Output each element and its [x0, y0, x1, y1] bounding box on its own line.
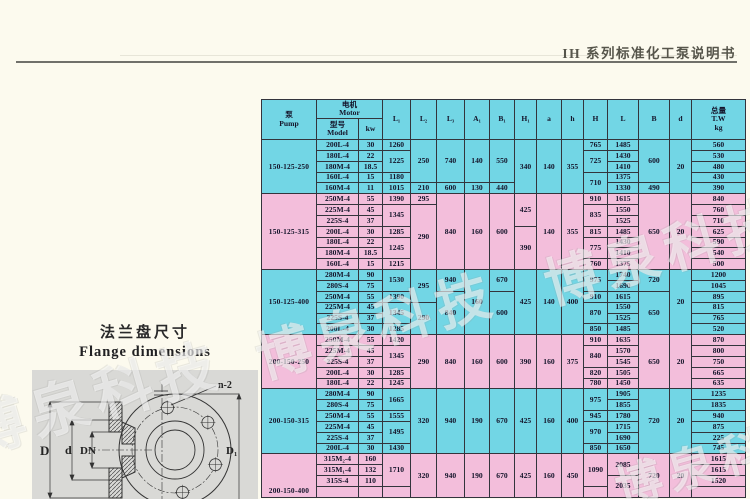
spec-cell: 1550 [608, 302, 639, 313]
header-model: 型号 Model [317, 119, 359, 140]
spec-cell: 1245 [383, 237, 411, 259]
spec-cell: 1690 [608, 280, 639, 291]
header-motor: 电机 Motor [317, 100, 383, 119]
spec-cell: 910 [584, 335, 608, 346]
spec-cell: 1215 [383, 259, 411, 270]
spec-cell: 725 [584, 150, 608, 172]
spec-cell: 180M-4 [317, 161, 359, 172]
spec-cell: 90 [359, 389, 383, 400]
spec-cell: 250M-4 [317, 194, 359, 205]
spec-cell: 840 [437, 291, 465, 334]
spec-cell: 1420 [383, 335, 411, 346]
spec-cell: 250M-4 [317, 291, 359, 302]
spec-cell: 1520 [692, 476, 746, 487]
spec-cell: 1715 [608, 421, 639, 432]
spec-cell: 500 [692, 259, 746, 270]
spec-cell: 1430 [608, 237, 639, 248]
spec-cell: 295 [411, 270, 437, 303]
spec-cell: 200L-4 [317, 226, 359, 237]
spec-cell: 450 [562, 454, 584, 497]
spec-cell: 1485 [608, 226, 639, 237]
table-row: 200-150-250250M-455142029084016060039016… [262, 335, 746, 346]
spec-cell: 22 [359, 150, 383, 161]
spec-cell: 225M-4 [317, 205, 359, 216]
spec-cell: 1740 [608, 270, 639, 281]
spec-cell: 180L-4 [317, 150, 359, 161]
spec-cell: 1285 [383, 324, 411, 335]
spec-cell: 320 [411, 389, 437, 454]
spec-cell: 140 [537, 270, 562, 335]
spec-cell: 1375 [608, 259, 639, 270]
table-row: 150-125-315250M-455139029584016060042514… [262, 194, 746, 205]
spec-cell: 800 [692, 346, 746, 357]
spec-cell: 835 [584, 205, 608, 227]
spec-cell: 940 [437, 270, 465, 292]
spec-cell: 1390 [383, 291, 411, 302]
spec-cell: 1330 [608, 183, 639, 194]
spec-cell: 1570 [608, 346, 639, 357]
spec-cell: 160 [359, 454, 383, 465]
spec-cell: 30 [359, 324, 383, 335]
spec-cell: 1555 [383, 411, 411, 422]
spec-cell: 1710 [383, 454, 411, 487]
spec-cell: 975 [584, 270, 608, 292]
spec-cell: 1045 [692, 280, 746, 291]
spec-cell: 940 [437, 454, 465, 497]
spec-cell: 1410 [608, 161, 639, 172]
spec-cell: 720 [639, 270, 670, 292]
spec-cell: 1375 [608, 172, 639, 183]
spec-cell: 20 [670, 140, 692, 194]
spec-cell: 400 [562, 389, 584, 454]
spec-cell: 635 [692, 378, 746, 389]
spec-cell: 1855 [608, 400, 639, 411]
spec-cell: 425 [515, 270, 537, 335]
spec-cell: 1410 [608, 248, 639, 259]
spec-cell: 1690 [608, 432, 639, 443]
spec-cell: 160L-4 [317, 259, 359, 270]
spec-cell: 225M-4 [317, 346, 359, 357]
spec-cell: 1450 [608, 378, 639, 389]
spec-table: 泵 Pump电机 MotorL₁L₂L₃A₁B₁H₁ahHLBd总量 T.W k… [261, 99, 746, 498]
spec-cell: 390 [692, 183, 746, 194]
spec-cell: 425 [515, 454, 537, 497]
spec-cell: 870 [584, 302, 608, 324]
spec-cell: 1345 [383, 346, 411, 368]
spec-cell: 20 [670, 194, 692, 270]
spec-cell: 400 [562, 270, 584, 335]
spec-cell: 1345 [383, 205, 411, 227]
spec-cell: 180L-4 [317, 378, 359, 389]
spec-cell: 130 [465, 183, 490, 194]
spec-cell: 90 [359, 270, 383, 281]
spec-cell: 315M₁-4 [317, 465, 359, 476]
spec-cell: 870 [692, 335, 746, 346]
spec-cell: 200L-4 [317, 140, 359, 151]
spec-cell: 1545 [608, 356, 639, 367]
spec-cell: 315M₂-4 [317, 454, 359, 465]
header-pump: 泵 Pump [262, 100, 317, 140]
spec-cell: 22 [359, 237, 383, 248]
spec-cell: 670 [490, 454, 515, 497]
table-row: 200-150-400315M₂-41601710320940190670425… [262, 454, 746, 465]
spec-cell: 250 [411, 140, 437, 183]
spec-cell: 290 [411, 302, 437, 335]
spec-cell: 1090 [584, 454, 608, 487]
spec-cell: 430 [692, 172, 746, 183]
spec-cell: 200L-4 [317, 443, 359, 454]
spec-cell: 1635 [608, 335, 639, 346]
spec-cell: 840 [692, 194, 746, 205]
spec-cell: 1345 [383, 302, 411, 324]
spec-cell: 840 [437, 335, 465, 389]
spec-cell: 15 [359, 259, 383, 270]
spec-cell: 1180 [383, 172, 411, 183]
spec-cell: 160 [537, 335, 562, 389]
flange-diagram: D d DN n-2 D₁ [32, 370, 258, 499]
spec-cell: 775 [584, 237, 608, 259]
spec-cell: 160M-4 [317, 183, 359, 194]
spec-cell: 55 [359, 335, 383, 346]
spec-cell: 520 [692, 324, 746, 335]
header-dim-11: d [670, 100, 692, 140]
spec-cell: 940 [692, 411, 746, 422]
spec-cell: 1260 [383, 140, 411, 151]
label-D: D [40, 443, 49, 458]
spec-cell: 760 [692, 205, 746, 216]
spec-cell: 425 [515, 389, 537, 454]
spec-cell: 1485 [608, 324, 639, 335]
spec-cell: 2035 [608, 476, 639, 498]
spec-cell: 910 [584, 291, 608, 302]
spec-cell: 37 [359, 313, 383, 324]
spec-cell: 55 [359, 194, 383, 205]
pump-size-cell: 150-125-250 [262, 140, 317, 194]
pump-size-cell: 150-125-315 [262, 194, 317, 270]
spec-cell: 37 [359, 356, 383, 367]
pump-size-cell: 200-150-315 [262, 389, 317, 454]
spec-cell: 30 [359, 367, 383, 378]
spec-cell [692, 487, 746, 498]
spec-cell: 20 [670, 335, 692, 389]
spec-cell: 665 [692, 367, 746, 378]
spec-cell: 250M-4 [317, 411, 359, 422]
spec-cell: 1505 [608, 367, 639, 378]
page-title: IH 系列标准化工泵说明书 [562, 42, 736, 62]
header-total-weight: 总量 T.W kg [692, 100, 746, 140]
flange-title-zh: 法兰盘尺寸 [32, 321, 258, 342]
spec-cell: 850 [584, 324, 608, 335]
spec-cell: 1495 [383, 421, 411, 443]
spec-cell: 820 [584, 367, 608, 378]
spec-cell: 1245 [383, 378, 411, 389]
spec-cell: 1615 [692, 465, 746, 476]
spec-cell: 75 [359, 400, 383, 411]
spec-cell [383, 487, 411, 498]
spec-cell: 290 [411, 205, 437, 270]
spec-cell: 290 [411, 335, 437, 389]
spec-cell: 225S-4 [317, 356, 359, 367]
spec-cell: 1485 [608, 140, 639, 151]
spec-cell: 590 [692, 237, 746, 248]
spec-cell: 20 [670, 270, 692, 335]
spec-cell: 1285 [383, 226, 411, 237]
spec-cell: 55 [359, 291, 383, 302]
header-dim-6: a [537, 100, 562, 140]
spec-cell: 132 [359, 465, 383, 476]
label-D1: D₁ [226, 445, 237, 457]
spec-cell: 375 [562, 335, 584, 389]
spec-cell: 1430 [383, 443, 411, 454]
spec-cell: 11 [359, 183, 383, 194]
spec-cell: 850 [584, 443, 608, 454]
spec-cell: 780 [584, 378, 608, 389]
spec-cell [359, 487, 383, 498]
spec-cell: 140 [537, 140, 562, 194]
spec-cell: 160 [465, 335, 490, 389]
spec-cell: 600 [490, 194, 515, 270]
spec-cell: 1530 [383, 270, 411, 292]
spec-cell: 295 [411, 194, 437, 205]
spec-cell: 160 [465, 270, 490, 335]
spec-cell: 250M-4 [317, 335, 359, 346]
spec-cell: 1835 [692, 400, 746, 411]
spec-cell: 20 [670, 454, 692, 497]
spec-cell: 160L-4 [317, 172, 359, 183]
spec-cell: 37 [359, 432, 383, 443]
spec-cell: 895 [692, 291, 746, 302]
spec-cell: 650 [639, 291, 670, 334]
spec-cell: 225M-4 [317, 421, 359, 432]
header-kw: kw [359, 119, 383, 140]
spec-cell: 720 [639, 389, 670, 454]
spec-cell: 540 [692, 248, 746, 259]
spec-cell: 425 [515, 194, 537, 227]
spec-cell: 720 [639, 454, 670, 497]
spec-cell: 1550 [608, 205, 639, 216]
spec-cell [584, 487, 608, 498]
header-dim-2: L₃ [437, 100, 465, 140]
spec-cell: 200L-4 [317, 324, 359, 335]
spec-cell: 815 [692, 302, 746, 313]
spec-cell: 30 [359, 140, 383, 151]
spec-cell: 1525 [608, 215, 639, 226]
spec-cell: 480 [692, 161, 746, 172]
spec-cell: 1015 [383, 183, 411, 194]
table-row: 150-125-400280M-490153029594016067042514… [262, 270, 746, 281]
spec-cell: 1615 [608, 291, 639, 302]
header-dim-8: H [584, 100, 608, 140]
spec-cell: 600 [437, 183, 465, 194]
spec-cell: 530 [692, 150, 746, 161]
spec-cell: 1225 [383, 150, 411, 172]
spec-cell: 20 [670, 389, 692, 454]
header-dim-9: L [608, 100, 639, 140]
spec-cell: 18.5 [359, 161, 383, 172]
flange-title-en: Flange dimensions [32, 344, 258, 361]
spec-cell: 355 [562, 140, 584, 194]
spec-cell: 750 [692, 356, 746, 367]
spec-cell: 160 [465, 194, 490, 270]
pump-size-cell: 200-150-400 [262, 454, 317, 497]
spec-cell: 225 [692, 432, 746, 443]
spec-cell: 15 [359, 172, 383, 183]
spec-cell: 840 [584, 346, 608, 368]
spec-cell: 600 [639, 140, 670, 183]
spec-cell: 650 [639, 194, 670, 270]
spec-cell: 600 [490, 335, 515, 389]
spec-cell: 18.5 [359, 248, 383, 259]
spec-cell: 390 [515, 335, 537, 389]
spec-cell: 840 [437, 194, 465, 270]
spec-cell: 140 [537, 194, 562, 270]
spec-cell: 625 [692, 226, 746, 237]
spec-cell: 280M-4 [317, 389, 359, 400]
spec-cell: 710 [584, 172, 608, 194]
spec-cell: 45 [359, 205, 383, 216]
spec-cell: 30 [359, 226, 383, 237]
spec-cell: 355 [562, 194, 584, 270]
spec-cell: 710 [692, 215, 746, 226]
spec-cell: 760 [584, 259, 608, 270]
header-dim-7: h [562, 100, 584, 140]
spec-cell: 75 [359, 280, 383, 291]
spec-cell: 37 [359, 215, 383, 226]
spec-cell: 320 [411, 454, 437, 497]
pump-size-cell: 150-125-400 [262, 270, 317, 335]
spec-cell: 190 [465, 454, 490, 497]
spec-cell: 1615 [692, 454, 746, 465]
header-dim-0: L₁ [383, 100, 411, 140]
spec-cell: 30 [359, 443, 383, 454]
label-d: d [65, 443, 72, 457]
spec-cell: 160 [537, 454, 562, 497]
spec-cell: 140 [465, 140, 490, 183]
spec-cell: 2085 [608, 454, 639, 476]
spec-cell: 1780 [608, 411, 639, 422]
spec-cell: 225S-4 [317, 215, 359, 226]
table-row: 200-150-315280M-490166532094019067042516… [262, 389, 746, 400]
header-dim-10: B [639, 100, 670, 140]
spec-cell: 765 [584, 140, 608, 151]
spec-cell: 740 [437, 140, 465, 183]
spec-cell: 650 [639, 335, 670, 389]
spec-cell: 1235 [692, 389, 746, 400]
spec-cell: 1285 [383, 367, 411, 378]
spec-cell: 440 [490, 183, 515, 194]
table-row: 150-125-250200L-430126025074014055034014… [262, 140, 746, 151]
label-n2: n-2 [218, 380, 232, 391]
spec-cell: 945 [584, 411, 608, 422]
spec-cell [317, 487, 359, 498]
spec-cell: 225S-4 [317, 313, 359, 324]
spec-cell: 280S-4 [317, 280, 359, 291]
spec-table-wrap: 泵 Pump电机 MotorL₁L₂L₃A₁B₁H₁ahHLBd总量 T.W k… [261, 99, 746, 498]
spec-cell: 490 [639, 183, 670, 194]
spec-cell: 45 [359, 346, 383, 357]
spec-cell: 180L-4 [317, 237, 359, 248]
spec-cell: 210 [411, 183, 437, 194]
spec-cell: 1430 [608, 150, 639, 161]
spec-cell: 600 [490, 291, 515, 334]
spec-cell: 745 [692, 443, 746, 454]
spec-cell: 1200 [692, 270, 746, 281]
spec-cell: 45 [359, 302, 383, 313]
spec-cell: 875 [692, 421, 746, 432]
header-dim-4: B₁ [490, 100, 515, 140]
header-dim-1: L₂ [411, 100, 437, 140]
spec-cell: 1650 [608, 443, 639, 454]
spec-cell: 1665 [383, 389, 411, 411]
spec-cell: 560 [692, 140, 746, 151]
spec-cell: 910 [584, 194, 608, 205]
spec-cell: 22 [359, 378, 383, 389]
spec-cell: 225S-4 [317, 432, 359, 443]
pump-size-cell: 200-150-250 [262, 335, 317, 389]
spec-cell: 815 [584, 226, 608, 237]
header-dim-5: H₁ [515, 100, 537, 140]
spec-cell: 340 [515, 140, 537, 194]
spec-cell: 1525 [608, 313, 639, 324]
spec-cell: 390 [515, 226, 537, 269]
spec-cell: 1905 [608, 389, 639, 400]
spec-cell: 55 [359, 411, 383, 422]
spec-cell: 190 [465, 389, 490, 454]
spec-cell: 225M-4 [317, 302, 359, 313]
manual-page: IH 系列标准化工泵说明书 泵 Pump电机 MotorL₁L₂L₃A₁B₁H₁… [0, 0, 750, 499]
spec-cell: 110 [359, 476, 383, 487]
spec-cell: 1615 [608, 194, 639, 205]
spec-cell: 765 [692, 313, 746, 324]
spec-cell: 200L-4 [317, 367, 359, 378]
header-rule [16, 61, 737, 63]
spec-cell: 280S-4 [317, 400, 359, 411]
spec-cell: 45 [359, 421, 383, 432]
spec-cell: 315S-4 [317, 476, 359, 487]
spec-cell: 670 [490, 270, 515, 292]
label-DN: DN [80, 445, 96, 457]
spec-cell: 180M-4 [317, 248, 359, 259]
spec-cell: 160 [537, 389, 562, 454]
spec-cell: 975 [584, 389, 608, 411]
spec-cell: 670 [490, 389, 515, 454]
spec-cell: 550 [490, 140, 515, 183]
spec-cell: 940 [437, 389, 465, 454]
header-dim-3: A₁ [465, 100, 490, 140]
spec-cell: 280M-4 [317, 270, 359, 281]
spec-cell: 1390 [383, 194, 411, 205]
spec-cell: 970 [584, 421, 608, 443]
